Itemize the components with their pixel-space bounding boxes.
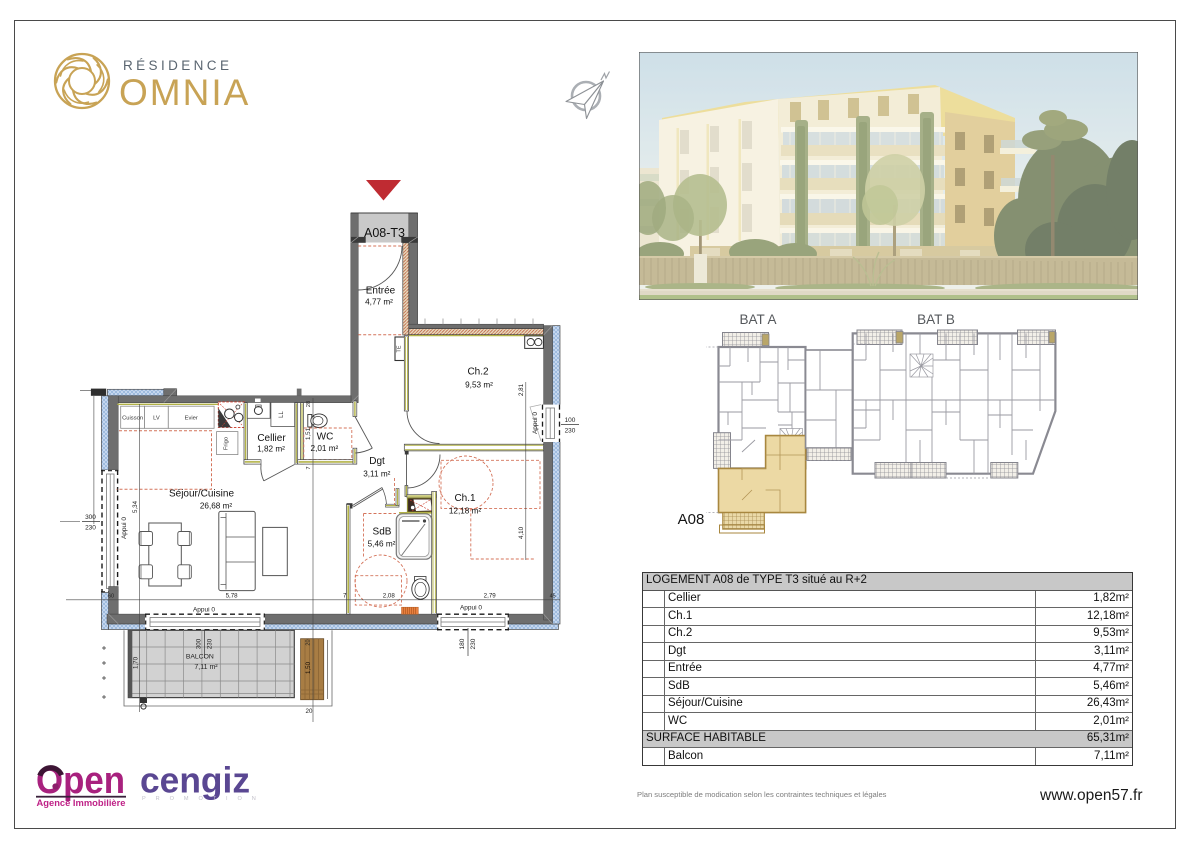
svg-text:230: 230 <box>470 638 477 649</box>
svg-text:Cellier: Cellier <box>257 433 286 444</box>
svg-text:20: 20 <box>306 708 313 715</box>
svg-text:230: 230 <box>565 428 576 435</box>
svg-text:60: 60 <box>108 594 114 600</box>
svg-text:300: 300 <box>85 514 96 521</box>
svg-text:TE: TE <box>397 345 403 352</box>
svg-text:BAT A: BAT A <box>739 312 776 327</box>
svg-text:28: 28 <box>306 401 312 407</box>
svg-text:26,68 m²: 26,68 m² <box>200 502 233 511</box>
svg-text:Appui 0: Appui 0 <box>460 605 482 612</box>
svg-text:RÉSIDENCE: RÉSIDENCE <box>123 58 232 73</box>
svg-text:300: 300 <box>196 638 203 649</box>
svg-text:3,11 m²: 3,11 m² <box>363 470 390 479</box>
svg-text:Evier: Evier <box>185 416 198 422</box>
svg-text:BAT B: BAT B <box>917 312 955 327</box>
svg-text:5,78: 5,78 <box>226 593 239 600</box>
svg-text:180: 180 <box>459 638 466 649</box>
svg-text:9,53 m²: 9,53 m² <box>465 381 493 390</box>
svg-text:LV: LV <box>153 416 160 422</box>
svg-text:45: 45 <box>550 594 556 600</box>
svg-text:1,82 m²: 1,82 m² <box>257 445 285 454</box>
svg-text:7: 7 <box>343 593 347 600</box>
svg-text:A08: A08 <box>678 511 705 528</box>
svg-text:5,46 m²: 5,46 m² <box>368 540 396 549</box>
svg-text:1,70: 1,70 <box>133 656 140 669</box>
svg-text:A08-T3: A08-T3 <box>364 226 405 240</box>
svg-text:Cuisson: Cuisson <box>122 416 143 422</box>
svg-text:Dgt: Dgt <box>369 456 385 467</box>
svg-text:Agence Immobilière: Agence Immobilière <box>37 798 126 808</box>
svg-text:Appui 0: Appui 0 <box>532 412 539 434</box>
svg-text:LL: LL <box>279 411 285 418</box>
svg-text:Séjour/Cuisine: Séjour/Cuisine <box>169 489 234 500</box>
svg-text:Appui 0: Appui 0 <box>193 607 215 614</box>
svg-text:Ch.2: Ch.2 <box>467 367 489 378</box>
svg-text:Entrée: Entrée <box>366 286 396 297</box>
svg-text:5,34: 5,34 <box>132 500 139 513</box>
svg-text:OMNIA: OMNIA <box>119 72 250 113</box>
svg-text:7,11 m²: 7,11 m² <box>194 664 218 671</box>
svg-text:20: 20 <box>306 639 312 645</box>
svg-text:100: 100 <box>565 417 576 424</box>
svg-text:BALCON: BALCON <box>186 654 214 661</box>
svg-text:12,18 m²: 12,18 m² <box>449 507 482 516</box>
svg-text:2,81: 2,81 <box>518 383 525 396</box>
svg-text:1,50: 1,50 <box>305 661 312 674</box>
svg-text:4,77 m²: 4,77 m² <box>365 298 393 307</box>
svg-text:cengiz: cengiz <box>140 760 250 801</box>
svg-text:2,79: 2,79 <box>484 593 497 600</box>
svg-text:2,08: 2,08 <box>383 593 396 600</box>
svg-text:230: 230 <box>85 525 96 532</box>
svg-text:Ch.1: Ch.1 <box>454 493 476 504</box>
svg-text:SdB: SdB <box>373 527 392 538</box>
svg-text:P R O M O T I O N: P R O M O T I O N <box>142 796 260 802</box>
svg-text:Frigo: Frigo <box>224 437 230 450</box>
svg-text:Appui 0: Appui 0 <box>121 517 128 539</box>
svg-text:WC: WC <box>317 432 334 443</box>
svg-text:7: 7 <box>306 466 312 469</box>
svg-text:4,10: 4,10 <box>518 526 525 539</box>
svg-text:1,51: 1,51 <box>305 427 312 440</box>
svg-text:230: 230 <box>207 638 214 649</box>
svg-text:2,01 m²: 2,01 m² <box>311 444 339 453</box>
